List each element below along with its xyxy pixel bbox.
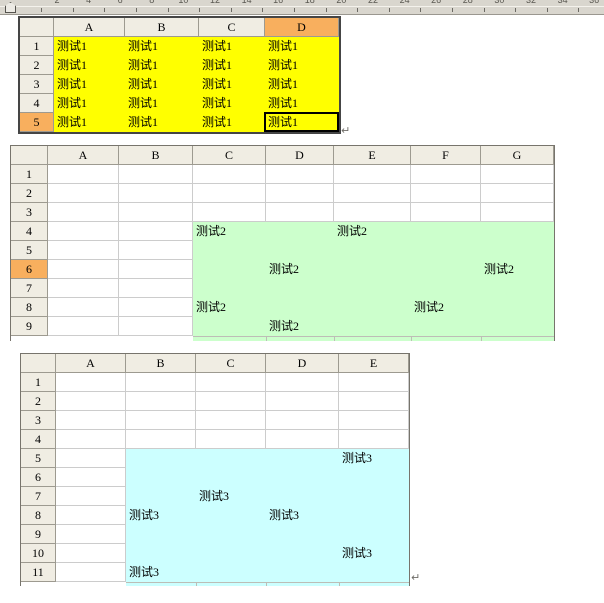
ruler-tick [452,8,453,12]
ruler-tick [326,8,327,12]
cell-E10[interactable]: 测试3 [339,544,432,563]
ruler-number-28: 28 [461,0,475,5]
ruler-tick [104,8,105,12]
row-header-4[interactable]: 4 [21,430,56,449]
fill-gridline-stub [481,336,482,341]
ruler-number-8: 8 [145,0,159,5]
row-header-3[interactable]: 3 [20,75,54,94]
horizontal-ruler[interactable]: 246810121416182022242628303234363840 [0,0,604,15]
row-header-6[interactable]: 6 [21,468,56,487]
ruler-number-10: 10 [176,0,190,5]
grid-cell-C1[interactable] [193,165,266,184]
ruler-number-6: 6 [113,0,127,5]
grid-cell-B4[interactable] [126,430,196,449]
grid-cell-F1[interactable] [411,165,481,184]
grid-cell-F3[interactable] [411,203,481,222]
row-header-5[interactable]: 5 [11,241,48,260]
grid-cell-A10[interactable] [56,544,126,563]
grid-cell-E1[interactable] [334,165,411,184]
grid-cell-A1[interactable] [56,373,126,392]
ruler-tick [420,8,421,12]
grid-cell-A3[interactable] [56,411,126,430]
column-header-E[interactable]: E [334,146,411,165]
row-header-2[interactable]: 2 [11,184,48,203]
cell-C4[interactable]: 测试2 [193,222,289,241]
row-header-3[interactable]: 3 [21,411,56,430]
grid-cell-A3[interactable] [48,203,119,222]
column-header-B[interactable]: B [126,354,196,373]
ruler-tick [357,8,358,12]
fill-gridline-stub [266,336,267,341]
grid-cell-D2[interactable] [266,392,339,411]
row-header-2[interactable]: 2 [20,56,54,75]
grid-cell-B5[interactable] [119,241,193,260]
indent-marker[interactable] [5,2,16,13]
grid-cell-F2[interactable] [411,184,481,203]
grid-cell-A8[interactable] [56,506,126,525]
ruler-number-16: 16 [271,0,285,5]
ruler-tick [199,8,200,12]
cell-D1[interactable]: 测试1 [265,37,362,56]
grid-cell-A6[interactable] [48,260,119,279]
ruler-groove [0,6,604,7]
ruler-number-18: 18 [303,0,317,5]
grid-cell-B2[interactable] [119,184,193,203]
ruler-tick [294,8,295,12]
grid-cell-A7[interactable] [48,279,119,298]
ruler-tick [578,8,579,12]
ruler-number-4: 4 [82,0,96,5]
column-header-C[interactable]: C [199,18,265,37]
row-header-11[interactable]: 11 [21,563,56,582]
cell-D8[interactable]: 测试3 [266,506,362,525]
grid-cell-D2[interactable] [266,184,334,203]
row-header-7[interactable]: 7 [21,487,56,506]
row-header-5[interactable]: 5 [21,449,56,468]
cell-B11[interactable]: 测试3 [126,563,219,582]
ruler-number-12: 12 [208,0,222,5]
row-header-8[interactable]: 8 [21,506,56,525]
column-header-G[interactable]: G [481,146,554,165]
ruler-tick [231,8,232,12]
column-header-E[interactable]: E [339,354,409,373]
ruler-tick [389,8,390,12]
ruler-tick [515,8,516,12]
grid-cell-B2[interactable] [126,392,196,411]
ruler-tick [136,8,137,12]
row-header-9[interactable]: 9 [21,525,56,544]
cell-B8[interactable]: 测试3 [126,506,219,525]
grid-cell-E1[interactable] [339,373,409,392]
ruler-number-20: 20 [334,0,348,5]
grid-cell-D1[interactable] [266,165,334,184]
row-header-7[interactable]: 7 [11,279,48,298]
select-all-corner[interactable] [11,146,48,165]
grid-cell-B1[interactable] [119,165,193,184]
ruler-tick [484,8,485,12]
column-header-D[interactable]: D [266,146,334,165]
grid-cell-C3[interactable] [196,411,266,430]
cell-D4[interactable]: 测试1 [265,94,362,113]
grid-cell-A6[interactable] [56,468,126,487]
grid-cell-A8[interactable] [48,298,119,317]
column-header-F[interactable]: F [411,146,481,165]
select-all-corner[interactable] [20,18,54,37]
cell-D6[interactable]: 测试2 [266,260,357,279]
grid-cell-C3[interactable] [193,203,266,222]
grid-cell-E2[interactable] [339,392,409,411]
row-header-1[interactable]: 1 [11,165,48,184]
ruler-number-30: 30 [492,0,506,5]
cell-G6[interactable]: 测试2 [481,260,577,279]
grid-cell-G2[interactable] [481,184,554,203]
ruler-number-2: 2 [50,0,64,5]
fill-gridline-stub [266,582,267,586]
fill-gridline-stub [339,582,340,586]
grid-cell-A11[interactable] [56,563,126,582]
cell-D2[interactable]: 测试1 [265,56,362,75]
grid-cell-A2[interactable] [56,392,126,411]
cell-F8[interactable]: 测试2 [411,298,504,317]
ruler-number-32: 32 [524,0,538,5]
column-header-D[interactable]: D [266,354,339,373]
cell-C8[interactable]: 测试2 [193,298,289,317]
grid-cell-G3[interactable] [481,203,554,222]
row-header-5[interactable]: 5 [20,113,54,132]
grid-cell-A4[interactable] [56,430,126,449]
document-canvas: 246810121416182022242628303234363840 ABC… [0,0,604,603]
grid-cell-C2[interactable] [196,392,266,411]
column-header-A[interactable]: A [56,354,126,373]
grid-cell-E3[interactable] [339,411,409,430]
fill-gridline-stub [196,582,197,586]
spreadsheet-1: ABCD12345测试1测试1测试1测试1测试1测试1测试1测试1测试1测试1测… [18,16,341,134]
column-header-A[interactable]: A [54,18,125,37]
grid-cell-A9[interactable] [48,317,119,336]
grid-cell-B8[interactable] [119,298,193,317]
ruler-tick [168,8,169,12]
cell-D3[interactable]: 测试1 [265,75,362,94]
ruler-number-24: 24 [398,0,412,5]
grid-cell-B1[interactable] [126,373,196,392]
column-header-A[interactable]: A [48,146,119,165]
spreadsheet-3: ABCDE1234567891011测试3测试3测试3测试3测试3测试3↵ [20,353,410,586]
paragraph-mark-icon: ↵ [341,125,350,136]
grid-cell-A2[interactable] [48,184,119,203]
row-header-3[interactable]: 3 [11,203,48,222]
grid-cell-C1[interactable] [196,373,266,392]
grid-cell-B7[interactable] [119,279,193,298]
row-header-1[interactable]: 1 [20,37,54,56]
grid-cell-C4[interactable] [196,430,266,449]
grid-cell-D3[interactable] [266,203,334,222]
row-header-4[interactable]: 4 [20,94,54,113]
row-header-6[interactable]: 6 [11,260,48,279]
grid-cell-B3[interactable] [126,411,196,430]
row-header-8[interactable]: 8 [11,298,48,317]
ruler-number-22: 22 [366,0,380,5]
cell-E4[interactable]: 测试2 [334,222,434,241]
select-all-corner[interactable] [21,354,56,373]
row-header-1[interactable]: 1 [21,373,56,392]
fill-gridline-stub [411,336,412,341]
grid-cell-A7[interactable] [56,487,126,506]
grid-cell-B4[interactable] [119,222,193,241]
row-header-10[interactable]: 10 [21,544,56,563]
grid-cell-A5[interactable] [48,241,119,260]
ruler-tick [73,8,74,12]
grid-cell-G1[interactable] [481,165,554,184]
grid-cell-D4[interactable] [266,430,339,449]
row-header-9[interactable]: 9 [11,317,48,336]
column-header-D[interactable]: D [265,18,339,37]
grid-cell-B3[interactable] [119,203,193,222]
row-header-4[interactable]: 4 [11,222,48,241]
grid-cell-E3[interactable] [334,203,411,222]
ruler-number-36: 36 [587,0,601,5]
grid-cell-A5[interactable] [56,449,126,468]
grid-cell-A9[interactable] [56,525,126,544]
paragraph-mark-icon: ↵ [411,572,420,583]
grid-cell-A1[interactable] [48,165,119,184]
ruler-tick [262,8,263,12]
grid-cell-E2[interactable] [334,184,411,203]
grid-cell-B6[interactable] [119,260,193,279]
cell-C7[interactable]: 测试3 [196,487,289,506]
cell-D9[interactable]: 测试2 [266,317,357,336]
row-header-2[interactable]: 2 [21,392,56,411]
grid-cell-E4[interactable] [339,430,409,449]
fill-row-gridline [193,336,554,337]
grid-cell-A4[interactable] [48,222,119,241]
ruler-number-26: 26 [429,0,443,5]
ruler-number-34: 34 [556,0,570,5]
grid-cell-C2[interactable] [193,184,266,203]
fill-row-gridline [126,582,409,583]
column-header-B[interactable]: B [119,146,193,165]
grid-cell-D3[interactable] [266,411,339,430]
ruler-tick [547,8,548,12]
spreadsheet-2: ABCDEFG123456789测试2测试2测试2测试2测试2测试2测试2 [10,145,555,341]
fill-gridline-stub [334,336,335,341]
column-header-B[interactable]: B [125,18,199,37]
cell-E5[interactable]: 测试3 [339,449,432,468]
ruler-tick [41,8,42,12]
column-header-C[interactable]: C [193,146,266,165]
active-cell-border[interactable] [264,112,339,132]
grid-cell-D1[interactable] [266,373,339,392]
column-header-C[interactable]: C [196,354,266,373]
grid-cell-B9[interactable] [119,317,193,336]
ruler-number-14: 14 [240,0,254,5]
